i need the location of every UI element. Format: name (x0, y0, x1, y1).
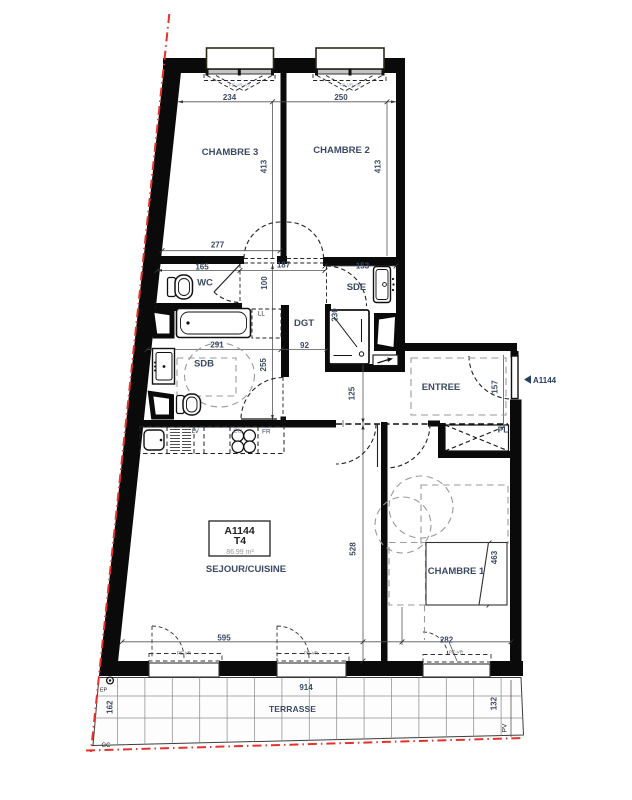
svg-text:528: 528 (349, 542, 358, 556)
svg-text:132: 132 (489, 696, 498, 710)
svg-text:DGT: DGT (294, 318, 314, 329)
svg-text:PE-VR: PE-VR (449, 650, 464, 655)
svg-text:SDB: SDB (194, 359, 214, 370)
svg-text:277: 277 (211, 241, 225, 250)
svg-text:CHAMBRE 3: CHAMBRE 3 (202, 147, 258, 158)
svg-text:WC: WC (197, 278, 213, 289)
svg-text:LV: LV (192, 428, 200, 435)
svg-text:CHAMBRE 2: CHAMBRE 2 (313, 145, 369, 156)
svg-text:157: 157 (491, 380, 500, 394)
svg-text:FR: FR (262, 429, 271, 436)
svg-text:FE-VR-AV: FE-VR-AV (339, 83, 361, 88)
svg-text:86.99 m²: 86.99 m² (226, 549, 254, 556)
svg-text:ENTREE: ENTREE (422, 382, 461, 393)
svg-text:PE-VR: PE-VR (177, 651, 192, 656)
svg-text:LL: LL (258, 312, 265, 318)
svg-text:TERRASSE: TERRASSE (269, 704, 316, 714)
svg-text:CHAMBRE 1: CHAMBRE 1 (428, 566, 485, 577)
svg-text:595: 595 (217, 634, 231, 643)
svg-text:250: 250 (334, 93, 348, 102)
svg-text:92: 92 (300, 341, 309, 350)
svg-text:PL: PL (498, 425, 509, 435)
svg-text:A1144: A1144 (533, 376, 557, 385)
svg-text:SEJOUR/CUISINE: SEJOUR/CUISINE (206, 564, 286, 575)
svg-text:GC: GC (102, 743, 112, 749)
svg-text:CU: CU (233, 428, 243, 435)
svg-text:SDE: SDE (347, 282, 367, 293)
svg-text:230: 230 (331, 308, 340, 322)
svg-text:234: 234 (223, 93, 237, 102)
svg-text:125: 125 (348, 386, 357, 400)
svg-text:PE-VR: PE-VR (304, 651, 319, 656)
svg-text:162: 162 (105, 700, 114, 714)
svg-text:463: 463 (490, 550, 499, 564)
svg-text:914: 914 (299, 683, 313, 692)
svg-text:165: 165 (195, 263, 209, 272)
svg-text:413: 413 (374, 159, 383, 173)
svg-text:282: 282 (440, 636, 454, 645)
svg-text:255: 255 (259, 358, 268, 372)
svg-text:153: 153 (356, 262, 370, 271)
svg-text:FE-VR-AV: FE-VR-AV (229, 83, 251, 88)
svg-text:291: 291 (210, 341, 224, 350)
svg-text:PV: PV (502, 723, 509, 732)
svg-text:T4: T4 (234, 535, 246, 547)
svg-text:413: 413 (260, 159, 269, 173)
svg-text:187: 187 (277, 261, 291, 270)
svg-text:100: 100 (260, 276, 269, 290)
svg-text:EP: EP (100, 688, 108, 694)
